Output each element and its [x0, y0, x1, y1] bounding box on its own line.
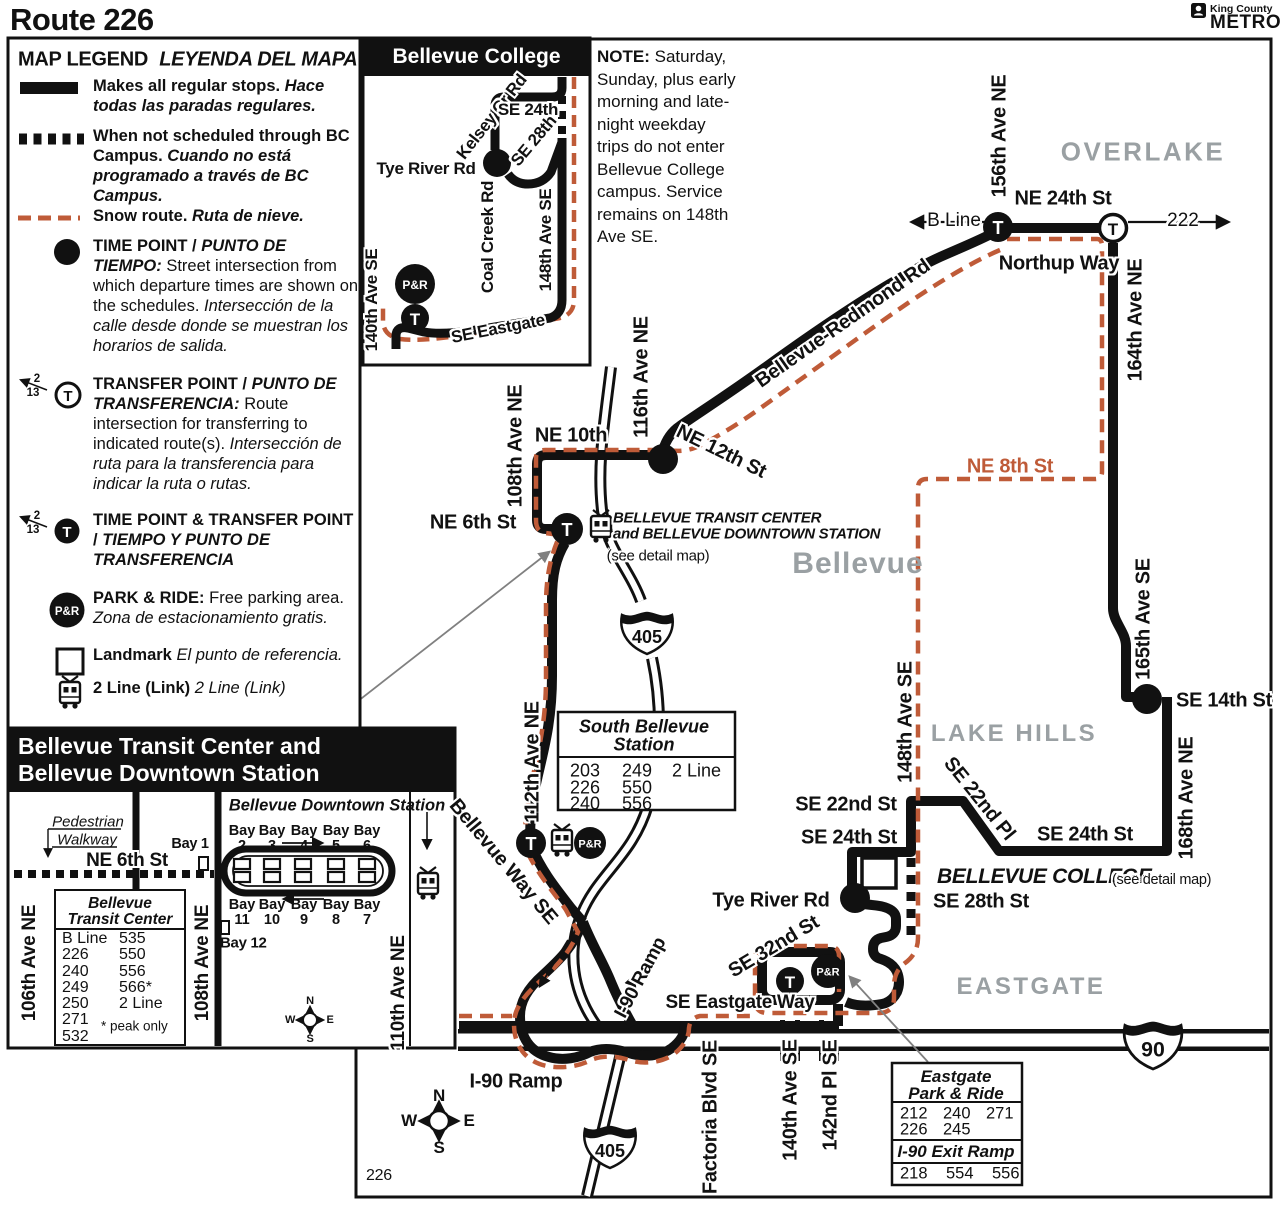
svg-text:405: 405 — [632, 627, 662, 647]
street-label: 108th Ave NE — [192, 905, 214, 1021]
bay-label: Bay6 — [354, 824, 381, 854]
street-label: 112th Ave NE — [522, 701, 545, 823]
svg-text:2: 2 — [34, 510, 40, 522]
legend-item-bc-campus: When not scheduled through BC Campus. Cu… — [93, 126, 359, 206]
area-label-overlake: OVERLAKE — [1061, 137, 1225, 168]
legend-item-snow: Snow route. Ruta de nieve. — [93, 206, 359, 226]
bay-label: Bay5 — [323, 824, 350, 854]
svg-text:405: 405 — [595, 1141, 625, 1161]
street-label: Coal Creek Rd — [478, 181, 498, 293]
street-label: 142nd Pl SE — [820, 1039, 843, 1150]
compass-n: N — [433, 1086, 445, 1106]
svg-text:T: T — [62, 524, 71, 541]
legend-item-landmark: Landmark El punto de referencia. — [93, 645, 359, 665]
route-label-222: 222 — [1167, 210, 1199, 232]
landmark-square — [862, 858, 896, 888]
legend-title-es: LEYENDA DEL MAPA — [159, 49, 357, 71]
btc-box-title: Transit Center — [68, 911, 173, 929]
pedestrian-walkway-label: Walkway — [57, 832, 117, 849]
bay-label: Bay9 — [291, 898, 318, 928]
street-label: 108th Ave NE — [505, 385, 528, 508]
sb-box-title: Station — [614, 735, 675, 756]
bay-label: Bay4 — [291, 824, 318, 854]
eg-route: 556 — [992, 1165, 1020, 1184]
street-label: 148th Ave SE — [536, 189, 556, 292]
eg-route: 226 — [900, 1121, 928, 1140]
sb-route: 240 — [570, 794, 600, 815]
compass-s: S — [306, 1033, 313, 1045]
street-label: Tye River Rd — [376, 159, 475, 179]
route-label-bline: B Line — [927, 210, 981, 232]
svg-text:T: T — [63, 388, 72, 405]
eg-route: 218 — [900, 1165, 928, 1184]
logo-agency: METRO — [1210, 12, 1280, 34]
street-label: 148th Ave SE — [895, 661, 918, 783]
btc-routes-col2: 535550556566*2 Line — [119, 931, 163, 1012]
light-rail-icon — [552, 824, 572, 857]
bay-label: Bay11 — [229, 898, 256, 928]
see-detail-note: (see detail map) — [1112, 872, 1211, 888]
street-label: NE 6th St — [430, 512, 516, 535]
compass-s: S — [433, 1138, 444, 1158]
street-label: 116th Ave NE — [631, 316, 654, 438]
street-label: 110th Ave NE — [388, 935, 410, 1050]
street-label: Tye River Rd — [712, 890, 829, 913]
legend-item-timepoint-transfer: TIME POINT & TRANSFER POINT / TIEMPO Y P… — [93, 510, 359, 570]
compass-e: E — [326, 1014, 333, 1026]
bay-label: Bay2 — [229, 824, 256, 854]
eg-box-title: Park & Ride — [908, 1084, 1003, 1104]
street-label: NE 6th St — [86, 850, 168, 872]
legend-item-transfer: TRANSFER POINT / PUNTO DE TRANSFERENCIA:… — [93, 374, 359, 494]
bc-inset-title: Bellevue College — [363, 38, 590, 76]
see-detail-note: (see detail map) — [607, 548, 710, 565]
street-label: 165th Ave SE — [1133, 558, 1156, 680]
page-title: Route 226 — [10, 2, 154, 38]
bay-12-label: Bay 12 — [220, 935, 267, 952]
street-label: NE 10th — [535, 425, 607, 448]
street-label: 164th Ave NE — [1125, 259, 1148, 382]
btc-callout: and BELLEVUE DOWNTOWN STATION — [613, 526, 880, 543]
compass-w: W — [401, 1111, 417, 1131]
compass-e: E — [463, 1111, 474, 1131]
king-county-logo-icon — [1191, 3, 1206, 18]
street-label-snow: NE 8th St — [967, 456, 1053, 479]
t-label: T — [410, 310, 421, 329]
legend-item-timepoint: TIME POINT / PUNTO DE TIEMPO: Street int… — [93, 236, 359, 356]
svg-text:13: 13 — [27, 524, 40, 536]
street-label: SE 28th St — [933, 891, 1029, 914]
street-label: Northup Way — [999, 253, 1119, 276]
bds-title: Bellevue Downtown Station — [229, 797, 445, 816]
eg-route: 245 — [943, 1121, 971, 1140]
street-label: SE 14th St — [1176, 690, 1272, 713]
area-label-bellevue: Bellevue — [792, 547, 923, 581]
sb-route: 556 — [622, 794, 652, 815]
bay-1-label: Bay 1 — [171, 836, 208, 852]
area-label-lakehills: LAKE HILLS — [931, 720, 1097, 748]
btc-inset-title: Bellevue Transit Center and Bellevue Dow… — [8, 728, 455, 792]
svg-text:T: T — [1108, 220, 1119, 239]
sheet-number: 226 — [366, 1167, 392, 1185]
legend-title-en: MAP LEGEND — [18, 49, 148, 71]
street-label: NE 24th St — [1014, 188, 1111, 211]
svg-text:P&R: P&R — [578, 839, 601, 851]
pedestrian-walkway-label: Pedestrian — [52, 814, 124, 831]
street-label: 140th Ave SE — [362, 249, 382, 352]
svg-text:90: 90 — [1141, 1038, 1165, 1062]
sb-route: 2 Line — [672, 761, 721, 782]
legend-title: MAP LEGEND LEYENDA DEL MAPA — [18, 49, 357, 72]
street-label: I-90 Ramp — [470, 1071, 563, 1094]
street-label: 106th Ave NE — [19, 905, 41, 1021]
street-label: 140th Ave SE — [780, 1039, 803, 1161]
bay-label: Bay10 — [259, 898, 286, 928]
compass-n: N — [306, 995, 314, 1007]
svg-text:P&R: P&R — [816, 967, 839, 979]
street-label: SE 24th St — [801, 827, 897, 850]
svg-text:13: 13 — [27, 387, 40, 399]
king-county-metro-logo — [1191, 3, 1206, 23]
svg-text:T: T — [526, 834, 537, 854]
compass-w: W — [285, 1014, 295, 1026]
street-label: SE 24th St — [1037, 824, 1133, 847]
btc-peak-note: * peak only — [101, 1019, 168, 1034]
svg-text:T: T — [562, 520, 573, 540]
bay-label: Bay7 — [354, 898, 381, 928]
legend-item-regular: Makes all regular stops. Hace todas las … — [93, 76, 359, 116]
svg-text:P&R: P&R — [55, 606, 80, 618]
service-note: NOTE: Saturday, Sunday, plus early morni… — [597, 46, 741, 249]
btc-callout: BELLEVUE TRANSIT CENTER — [613, 510, 821, 527]
street-label: 168th Ave NE — [1176, 737, 1199, 860]
eg-sub-title: I-90 Exit Ramp — [897, 1142, 1014, 1162]
svg-text:2: 2 — [34, 373, 40, 385]
eg-route: 271 — [986, 1105, 1014, 1124]
street-label: Factoria Blvd SE — [700, 1040, 723, 1194]
svg-text:T: T — [785, 973, 796, 992]
eg-route: 554 — [946, 1165, 974, 1184]
bay-label: Bay3 — [259, 824, 286, 854]
street-label: SE 22nd St — [795, 794, 896, 817]
light-rail-icon — [591, 510, 611, 543]
route-map-page: T T T T T P&R P&R 405 405 90 — [0, 0, 1280, 1206]
area-label-eastgate: EASTGATE — [957, 973, 1106, 1001]
bay-label: Bay8 — [323, 898, 350, 928]
street-label: 156th Ave NE — [989, 75, 1012, 198]
svg-text:T: T — [993, 218, 1004, 238]
pr-label: P&R — [402, 278, 428, 292]
street-label: SE Eastgate Way — [666, 992, 815, 1014]
legend-item-park-ride: PARK & RIDE: Free parking area. Zona de … — [93, 588, 359, 628]
legend-item-2line: 2 Line (Link) 2 Line (Link) — [93, 678, 359, 698]
